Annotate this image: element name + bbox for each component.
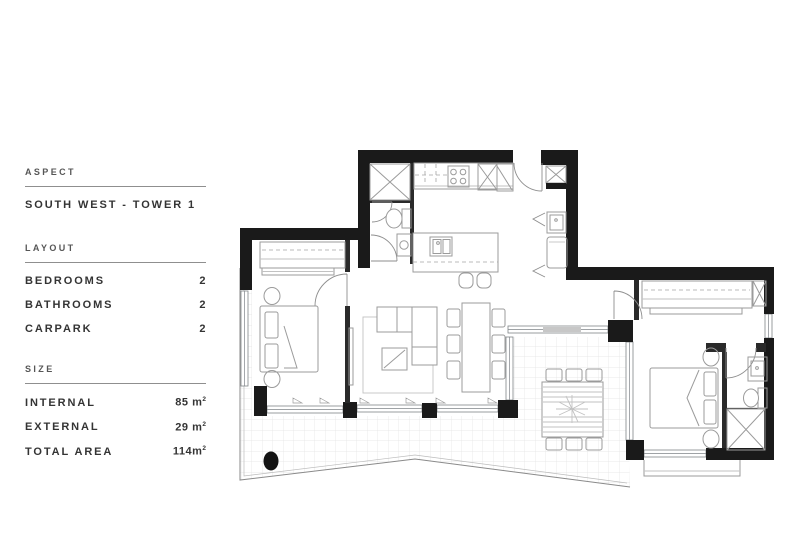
bedside-table bbox=[703, 430, 719, 448]
dining-table bbox=[462, 303, 490, 392]
laundry-closet bbox=[546, 166, 567, 268]
spec-value: 2 bbox=[199, 323, 206, 335]
spec-row-internal: INTERNAL 85 m2 bbox=[25, 396, 206, 409]
spec-label: BATHROOMS bbox=[25, 299, 113, 311]
spec-label: BEDROOMS bbox=[25, 275, 105, 287]
toilet-cistern bbox=[402, 209, 411, 228]
storage-cross bbox=[370, 164, 410, 200]
aspect-value: SOUTH WEST - TOWER 1 bbox=[25, 199, 196, 211]
spec-label: TOTAL AREA bbox=[25, 446, 113, 458]
spec-label: EXTERNAL bbox=[25, 421, 99, 433]
spec-row-total-area: TOTAL AREA 114m2 bbox=[25, 445, 206, 458]
spec-label: INTERNAL bbox=[25, 397, 96, 409]
wc-door bbox=[371, 235, 397, 261]
entry-door bbox=[514, 163, 542, 191]
floor-plan bbox=[230, 140, 800, 532]
linen-cross bbox=[546, 166, 566, 183]
spec-row-bedrooms: BEDROOMS 2 bbox=[25, 275, 206, 287]
terrace-slider-panel bbox=[543, 327, 581, 332]
spec-value: 29 m2 bbox=[175, 421, 206, 434]
storage-room bbox=[370, 164, 410, 200]
layout-heading: LAYOUT bbox=[25, 243, 206, 253]
kitchen bbox=[413, 163, 513, 288]
divider bbox=[25, 262, 206, 263]
info-panel: ASPECT SOUTH WEST - TOWER 1 LAYOUT BEDRO… bbox=[25, 167, 206, 458]
dining-area bbox=[447, 303, 505, 392]
bedroom1-door bbox=[315, 274, 347, 306]
balcony-column bbox=[264, 452, 279, 471]
outdoor-dining-set bbox=[542, 369, 603, 450]
spec-value: 85 m2 bbox=[175, 396, 206, 409]
bar-stool bbox=[477, 273, 491, 288]
shower bbox=[727, 409, 765, 450]
toilet bbox=[744, 388, 768, 408]
ensuite bbox=[727, 357, 767, 450]
bedroom2 bbox=[642, 281, 766, 448]
dining-chair bbox=[447, 335, 460, 353]
laundry-divider bbox=[546, 183, 566, 189]
dining-chair bbox=[447, 309, 460, 327]
spec-label: CARPARK bbox=[25, 323, 92, 335]
bedside-table bbox=[264, 288, 280, 305]
corner-pantry bbox=[497, 164, 513, 191]
bedroom1 bbox=[260, 242, 345, 388]
divider bbox=[25, 383, 206, 384]
wc-basin bbox=[397, 234, 411, 256]
aspect-heading: ASPECT bbox=[25, 167, 206, 177]
dining-chair bbox=[447, 361, 460, 379]
bed bbox=[260, 306, 318, 372]
section-aspect: ASPECT SOUTH WEST - TOWER 1 bbox=[25, 167, 206, 211]
section-size: SIZE INTERNAL 85 m2 EXTERNAL 29 m2 TOTAL… bbox=[25, 364, 206, 458]
spec-value: 2 bbox=[199, 299, 206, 311]
spec-value: 114m2 bbox=[173, 445, 206, 458]
spec-row-bathrooms: BATHROOMS 2 bbox=[25, 299, 206, 311]
divider bbox=[25, 186, 206, 187]
section-layout: LAYOUT BEDROOMS 2 BATHROOMS 2 CARPARK 2 bbox=[25, 243, 206, 335]
laundry-bifold-door bbox=[533, 213, 545, 277]
wardrobe bbox=[642, 281, 752, 314]
balcony-tiles bbox=[240, 268, 630, 487]
living-room bbox=[349, 307, 437, 393]
kitchen-island bbox=[413, 233, 498, 272]
toilet bbox=[386, 209, 402, 228]
bedside-table bbox=[264, 371, 280, 388]
floor-level-marks bbox=[293, 398, 497, 403]
cooktop bbox=[448, 166, 469, 187]
dining-chair bbox=[492, 335, 505, 353]
spec-value: 2 bbox=[199, 275, 206, 287]
floor-plan-drawing bbox=[230, 140, 800, 532]
dining-chair bbox=[492, 309, 505, 327]
spec-row-carpark: CARPARK 2 bbox=[25, 323, 206, 335]
bed bbox=[650, 368, 718, 428]
spec-row-external: EXTERNAL 29 m2 bbox=[25, 421, 206, 434]
size-heading: SIZE bbox=[25, 364, 206, 374]
brochure-page: ASPECT SOUTH WEST - TOWER 1 LAYOUT BEDRO… bbox=[0, 0, 800, 533]
balcony-terrace bbox=[240, 268, 630, 487]
juliet-balcony-rail bbox=[644, 460, 740, 476]
dining-chair bbox=[492, 361, 505, 379]
bar-stool bbox=[459, 273, 473, 288]
wc-room bbox=[386, 209, 411, 256]
wardrobe bbox=[260, 242, 345, 275]
